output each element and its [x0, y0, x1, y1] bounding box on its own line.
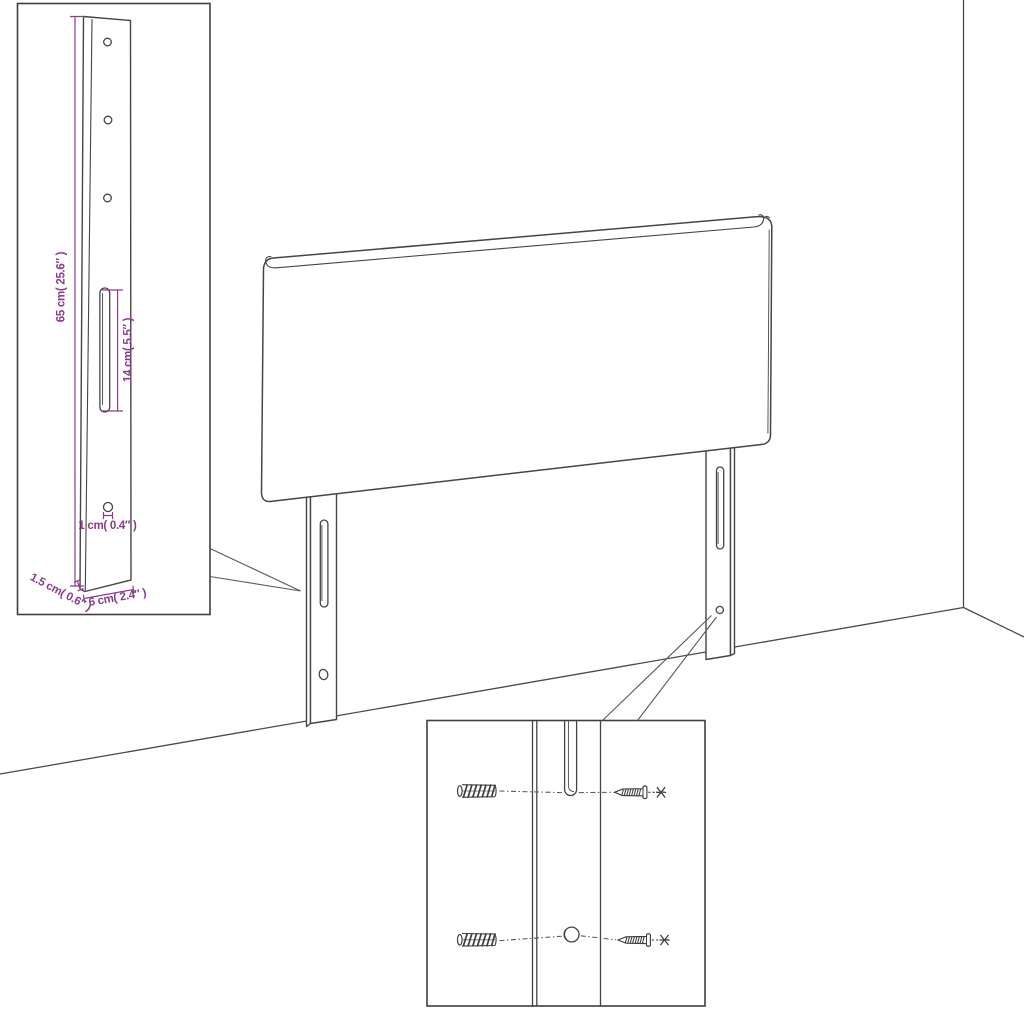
diagram-canvas: 65 cm( 25.6″ ) 14 cm( 5.5″ ) 1 cm( 0.4″ …: [0, 0, 1024, 1024]
floor-line-right: [964, 608, 1024, 638]
callout-left-inset-line-2: [210, 577, 301, 592]
left-leg: [307, 492, 337, 727]
callout-lines: [210, 549, 717, 721]
headboard-panel: [262, 215, 772, 502]
dim-slot-label: 14 cm( 5.5″ ): [123, 317, 135, 382]
detail-inset-mounting: [427, 721, 705, 1007]
callout-bottom-inset-line-2: [638, 617, 717, 721]
dim-height-label: 65 cm( 25.6″ ): [56, 251, 68, 322]
detail-inset-post: 65 cm( 25.6″ ) 14 cm( 5.5″ ) 1 cm( 0.4″ …: [18, 4, 211, 615]
callout-bottom-inset-line-1: [603, 616, 712, 721]
dim-hole-label: 1 cm( 0.4″ ): [78, 520, 137, 532]
panel-outline: [262, 217, 772, 502]
callout-left-inset-line-1: [210, 549, 301, 592]
bottom-inset-box: [427, 721, 705, 1007]
right-leg: [706, 447, 735, 660]
right-leg-side-face: [731, 447, 735, 656]
post-outline: [80, 17, 131, 592]
assembly-diagram: 65 cm( 25.6″ ) 14 cm( 5.5″ ) 1 cm( 0.4″ …: [0, 0, 1024, 1024]
left-leg-front-face: [311, 492, 337, 724]
